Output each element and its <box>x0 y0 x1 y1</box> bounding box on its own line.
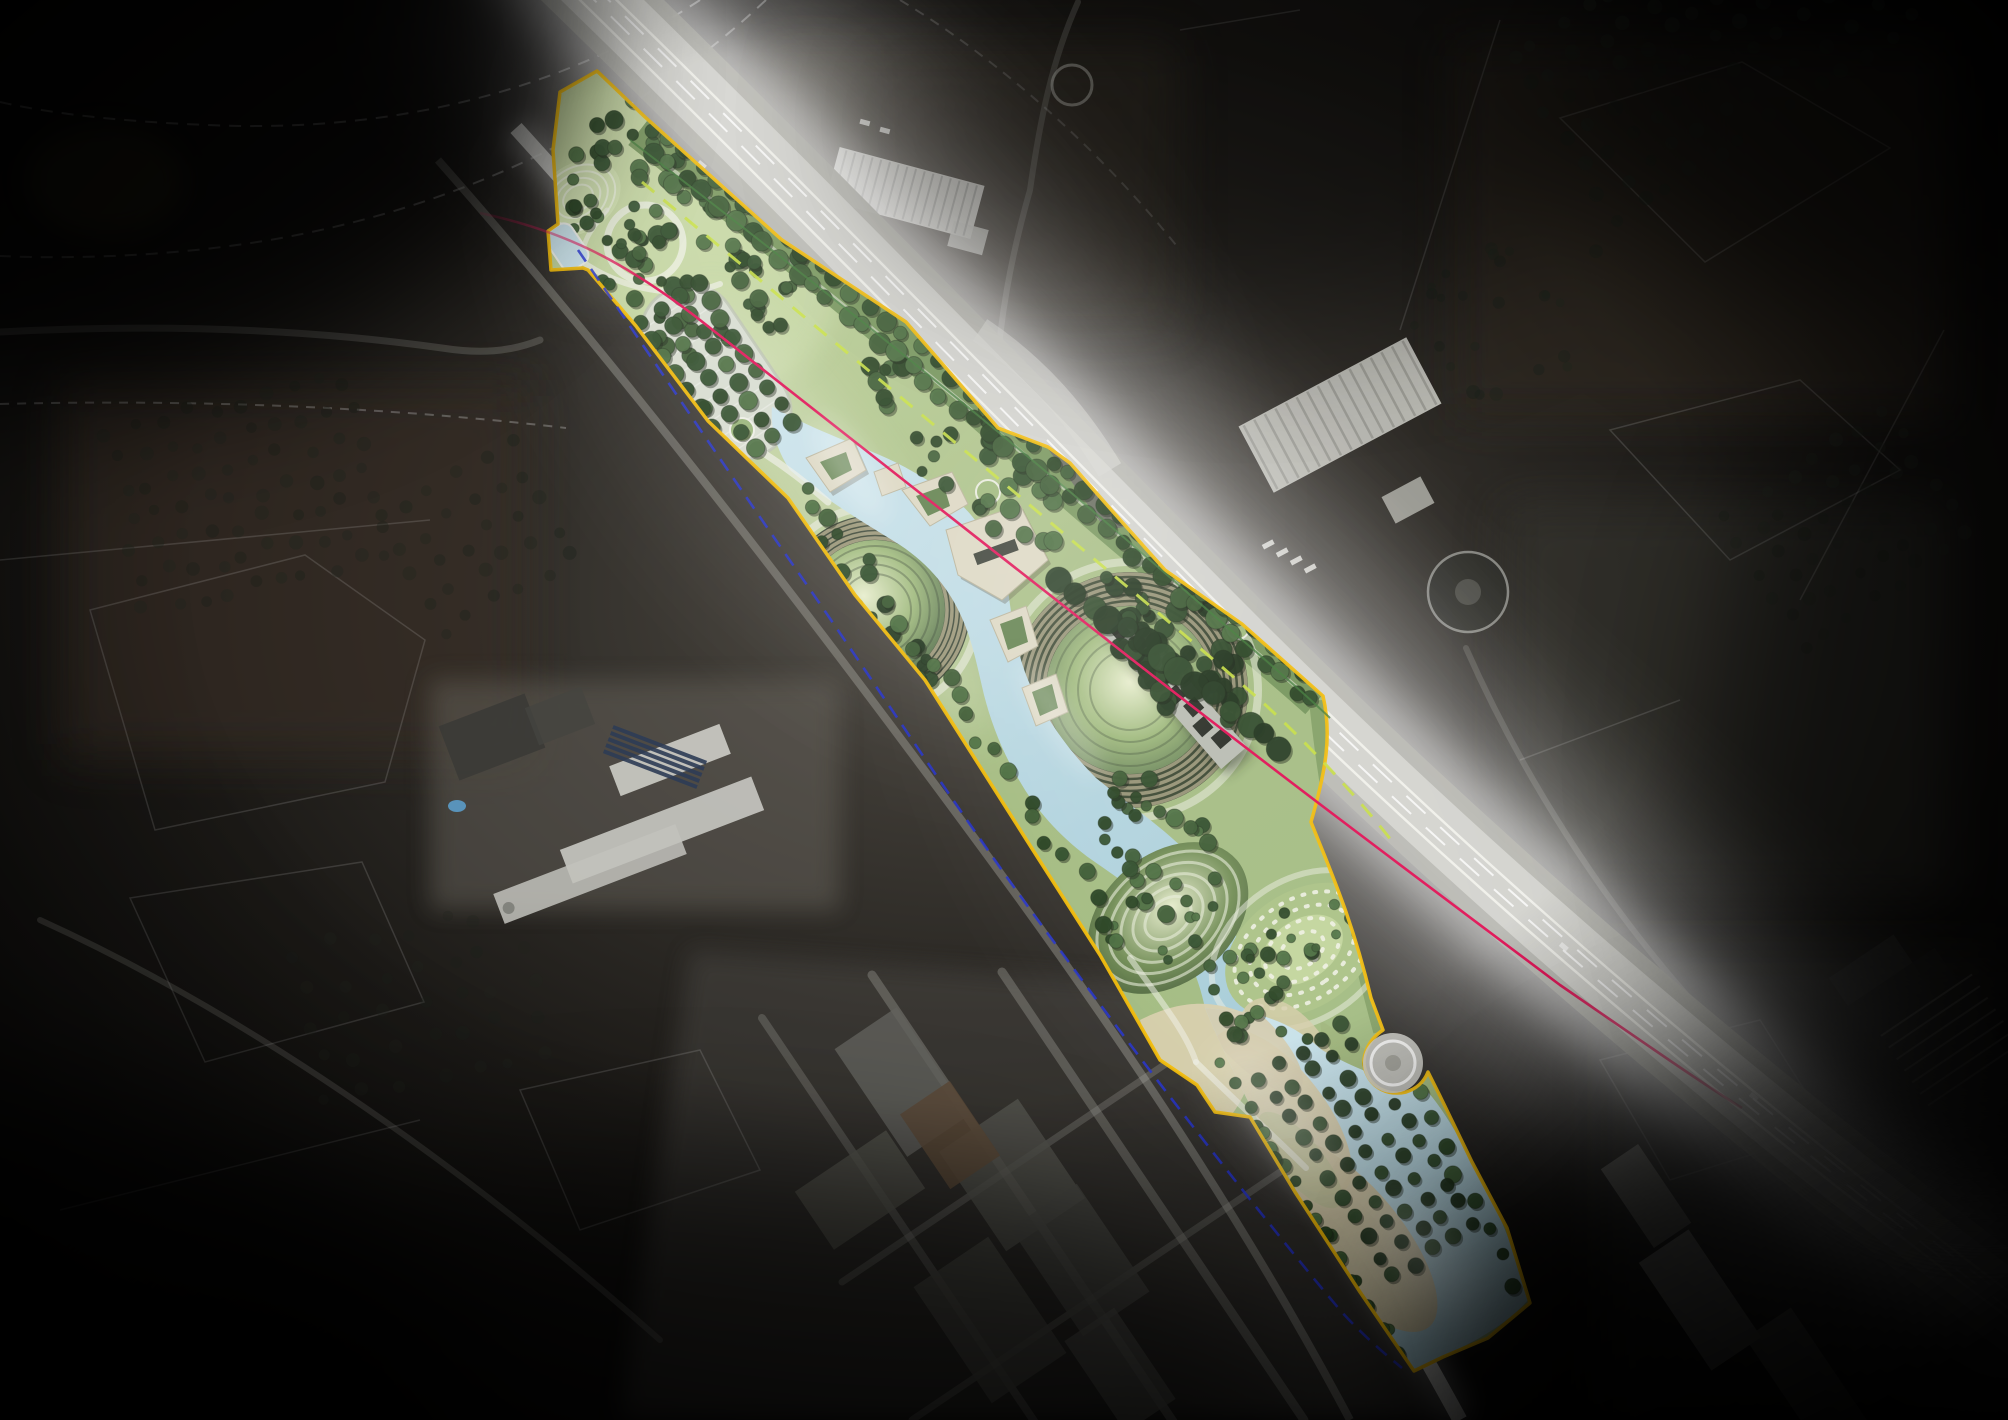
masterplan-figure: Aerial masterplan rendering of a linear … <box>0 0 2008 1420</box>
vignette <box>0 0 2008 1420</box>
masterplan-canvas: Aerial masterplan rendering of a linear … <box>0 0 2008 1420</box>
